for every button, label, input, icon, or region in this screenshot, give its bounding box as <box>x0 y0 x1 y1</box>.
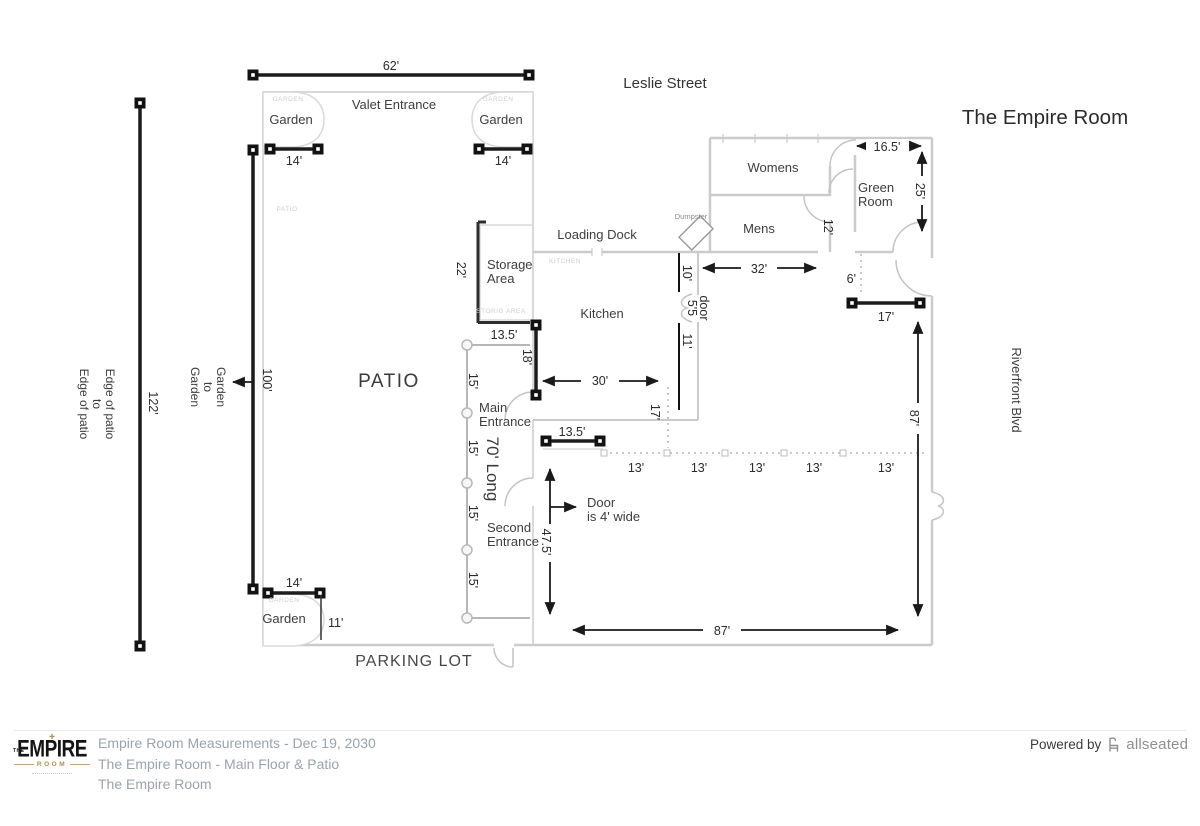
patio-label: PATIO <box>358 371 420 392</box>
kitchen-label: Kitchen <box>580 306 623 321</box>
door-note-line2: is 4' wide <box>587 509 640 524</box>
dotted-guides <box>610 254 928 453</box>
dim-62-label: 62' <box>383 59 399 73</box>
dim-13-label-2: 13' <box>691 461 707 475</box>
garden-bl-label: Garden <box>262 611 305 626</box>
green-room-label-line2: Room <box>858 194 893 209</box>
plan-meta-title: Empire Room Measurements - Dec 19, 2030 <box>98 733 376 754</box>
green-room-door-arc <box>829 169 853 193</box>
dim-22-label: 22' <box>454 262 468 278</box>
garden-tr-label: Garden <box>479 112 522 127</box>
dim-15-label-4: 15' <box>466 572 480 588</box>
second-entrance-label-line1: Second <box>487 520 531 535</box>
dim-15-label-2: 15' <box>466 440 480 456</box>
storage-label-line2: Area <box>487 271 515 286</box>
dumpster-shape <box>679 216 713 250</box>
dim-13-5-main-label: 13.5' <box>559 425 586 439</box>
door-note-line1: Door <box>587 495 616 510</box>
right-window-symbol <box>932 492 943 520</box>
parking-lot-label: PARKING LOT <box>355 653 472 670</box>
dim-15-label-1: 15' <box>466 373 480 389</box>
dim-30-label: 30' <box>592 374 608 388</box>
plan-meta-venue: The Empire Room <box>98 774 376 795</box>
dim-87-right-label: 87' <box>907 410 921 426</box>
watermark-garden-tl: GARDEN <box>273 96 304 103</box>
empire-room-logo: ✚ THE EMPIRE ROOM <box>14 735 90 774</box>
patio-walls <box>263 92 533 645</box>
logo-empire: EMPIRE <box>17 739 87 762</box>
garden-to-garden-line3: Garden <box>214 367 228 407</box>
dim-100-label: 100' <box>260 368 274 391</box>
door-arcs <box>494 140 943 667</box>
dim-25-label: 25' <box>913 183 927 199</box>
second-entrance-label-line2: Entrance <box>487 534 539 549</box>
watermark-garden-bl: GARDEN <box>269 597 300 604</box>
right-exit-door-arc <box>896 260 932 296</box>
dim-87-bottom-label: 87' <box>714 624 730 638</box>
floor-plan: 62' 14' 14' 14' 13.5' 13.5' 30' 32' 16.5… <box>0 0 1200 716</box>
dim-17-label: 17' <box>878 310 894 324</box>
dim-13-label-1: 13' <box>628 461 644 475</box>
edge-note-line2: to <box>90 399 104 409</box>
dim-15-label-3: 15' <box>466 505 480 521</box>
dim-14-tl-label: 14' <box>286 154 302 168</box>
dim-47-5-label: 47.5' <box>539 529 553 556</box>
dim-122-label: 122' <box>146 391 160 414</box>
dim-10-label: 10' <box>680 265 694 281</box>
dim-16-5-label: 16.5' <box>874 140 901 154</box>
edge-note-line1: Edge of patio <box>77 369 91 440</box>
powered-by: Powered by allseated <box>1030 736 1188 753</box>
plan-meta-subtitle: The Empire Room - Main Floor & Patio <box>98 754 376 775</box>
label-backings <box>540 139 930 638</box>
dim-13-label-3: 13' <box>749 461 765 475</box>
garden-to-garden-line2: to <box>201 382 215 392</box>
page-title: The Empire Room <box>962 106 1128 129</box>
allseated-brand: allseated <box>1126 736 1188 753</box>
garden-to-garden-line1: Garden <box>188 367 202 407</box>
green-room-hall-door-arc <box>893 222 923 252</box>
dim-32-label: 32' <box>751 262 767 276</box>
dim-5-5-label: 5'5 <box>685 300 699 316</box>
street-right-label: Riverfront Blvd <box>1009 347 1024 432</box>
watermark-kitchen: KITCHEN <box>549 258 581 265</box>
watermark-storage: STORIG AREA <box>476 308 526 315</box>
mens-label: Mens <box>743 221 775 236</box>
womens-label: Womens <box>747 160 799 175</box>
footer-divider <box>14 730 1186 731</box>
main-entrance-label-line2: Entrance <box>479 414 531 429</box>
dim-12-label: 12' <box>821 219 835 235</box>
logo-tagline <box>32 769 72 774</box>
womens-door-arc <box>830 140 856 166</box>
dim-13-label-5: 13' <box>878 461 894 475</box>
second-entrance-arc <box>505 478 533 506</box>
dim-70-long-label: 70' Long <box>483 437 502 502</box>
dim-11-kitchen-label: 11' <box>680 333 694 348</box>
loading-dock-label: Loading Dock <box>557 227 637 242</box>
storage-label-line1: Storage <box>487 257 533 272</box>
street-top-label: Leslie Street <box>623 75 707 92</box>
dim-18-label: 18' <box>520 349 534 365</box>
arrow-dims <box>233 146 922 630</box>
dim-11-garden-label: 11' <box>328 616 343 630</box>
allseated-chair-icon <box>1105 736 1122 753</box>
parking-door-arc <box>494 648 513 667</box>
green-room-label-line1: Green <box>858 180 894 195</box>
dumpster-label: Dumpster <box>675 212 708 221</box>
powered-by-label: Powered by <box>1030 737 1101 752</box>
dim-17-dotted-label: 17' <box>648 404 662 420</box>
main-entrance-label-line1: Main <box>479 400 507 415</box>
dim-13-5-storage-label: 13.5' <box>491 328 518 342</box>
dim-14-bl-label: 14' <box>286 576 302 590</box>
watermark-patio: PATIO <box>276 206 297 213</box>
garden-tl-label: Garden <box>269 112 312 127</box>
dim-6-label: 6' <box>847 272 856 286</box>
valet-entrance-label: Valet Entrance <box>352 97 436 112</box>
dim-14-tr-label: 14' <box>495 154 511 168</box>
watermark-garden-tr: GARDEN <box>483 96 514 103</box>
garden-shapes <box>263 92 533 646</box>
dim-door-word-label: door <box>697 295 711 320</box>
dim-13-label-4: 13' <box>806 461 822 475</box>
plan-metadata: Empire Room Measurements - Dec 19, 2030 … <box>98 733 376 795</box>
edge-note-line3: Edge of patio <box>103 369 117 440</box>
